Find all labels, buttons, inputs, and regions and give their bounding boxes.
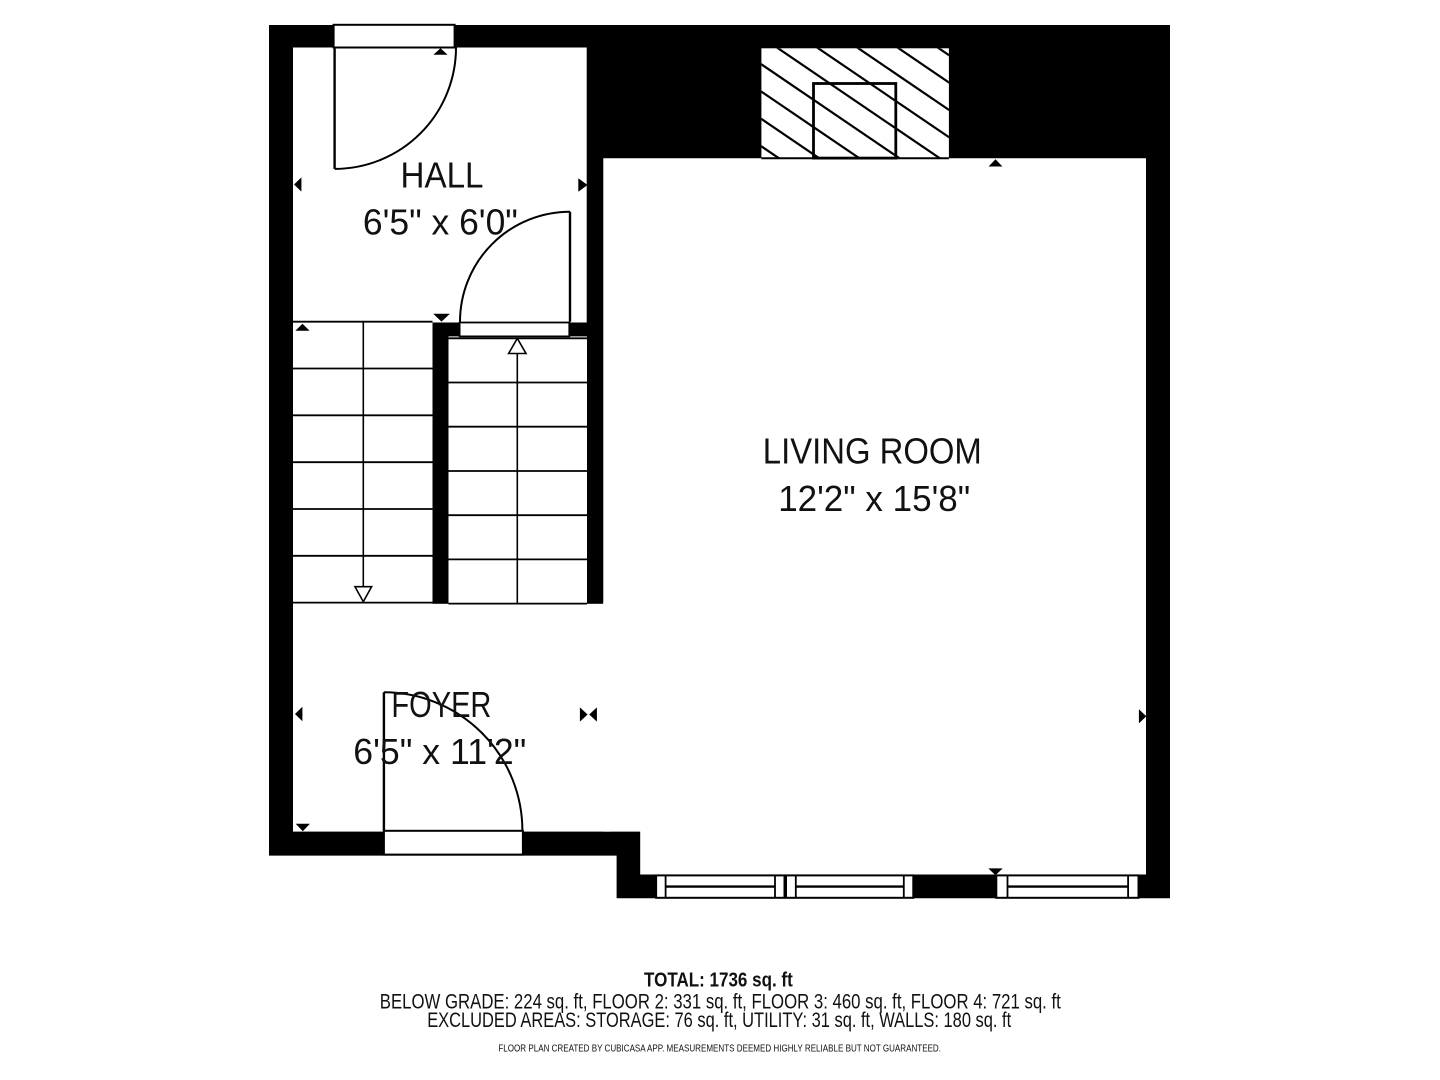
svg-text:LIVING ROOM: LIVING ROOM <box>763 431 982 472</box>
svg-text:6'5" x 11'2": 6'5" x 11'2" <box>353 731 526 772</box>
svg-text:HALL: HALL <box>401 154 484 195</box>
svg-text:FLOOR PLAN CREATED BY CUBICASA: FLOOR PLAN CREATED BY CUBICASA APP. MEAS… <box>498 1043 941 1055</box>
svg-text:TOTAL: 1736 sq. ft: TOTAL: 1736 sq. ft <box>644 970 793 992</box>
svg-text:EXCLUDED AREAS: STORAGE: 76 sq: EXCLUDED AREAS: STORAGE: 76 sq. ft, UTIL… <box>427 1009 1011 1032</box>
svg-text:12'2" x 15'8": 12'2" x 15'8" <box>778 478 970 519</box>
svg-text:FOYER: FOYER <box>391 684 491 725</box>
svg-text:6'5" x 6'0": 6'5" x 6'0" <box>363 202 518 243</box>
